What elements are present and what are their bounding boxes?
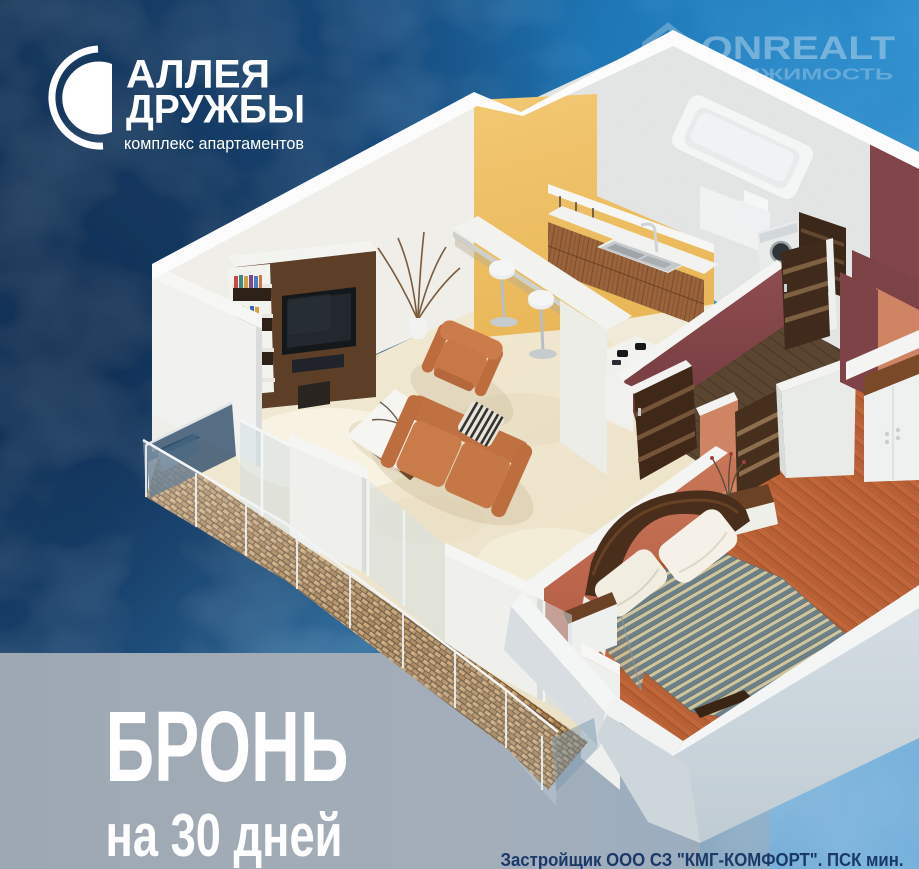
svg-text:на 30 дней: на 30 дней	[106, 802, 343, 869]
svg-text:комплекс апартаментов: комплекс апартаментов	[124, 134, 304, 153]
svg-text:ДРУЖБЫ: ДРУЖБЫ	[126, 88, 305, 132]
svg-text:Застройщик ООО СЗ "КМГ-КОМФОРТ: Застройщик ООО СЗ "КМГ-КОМФОРТ". ПСК мин…	[501, 849, 904, 869]
svg-text:БРОНЬ: БРОНЬ	[106, 691, 349, 803]
